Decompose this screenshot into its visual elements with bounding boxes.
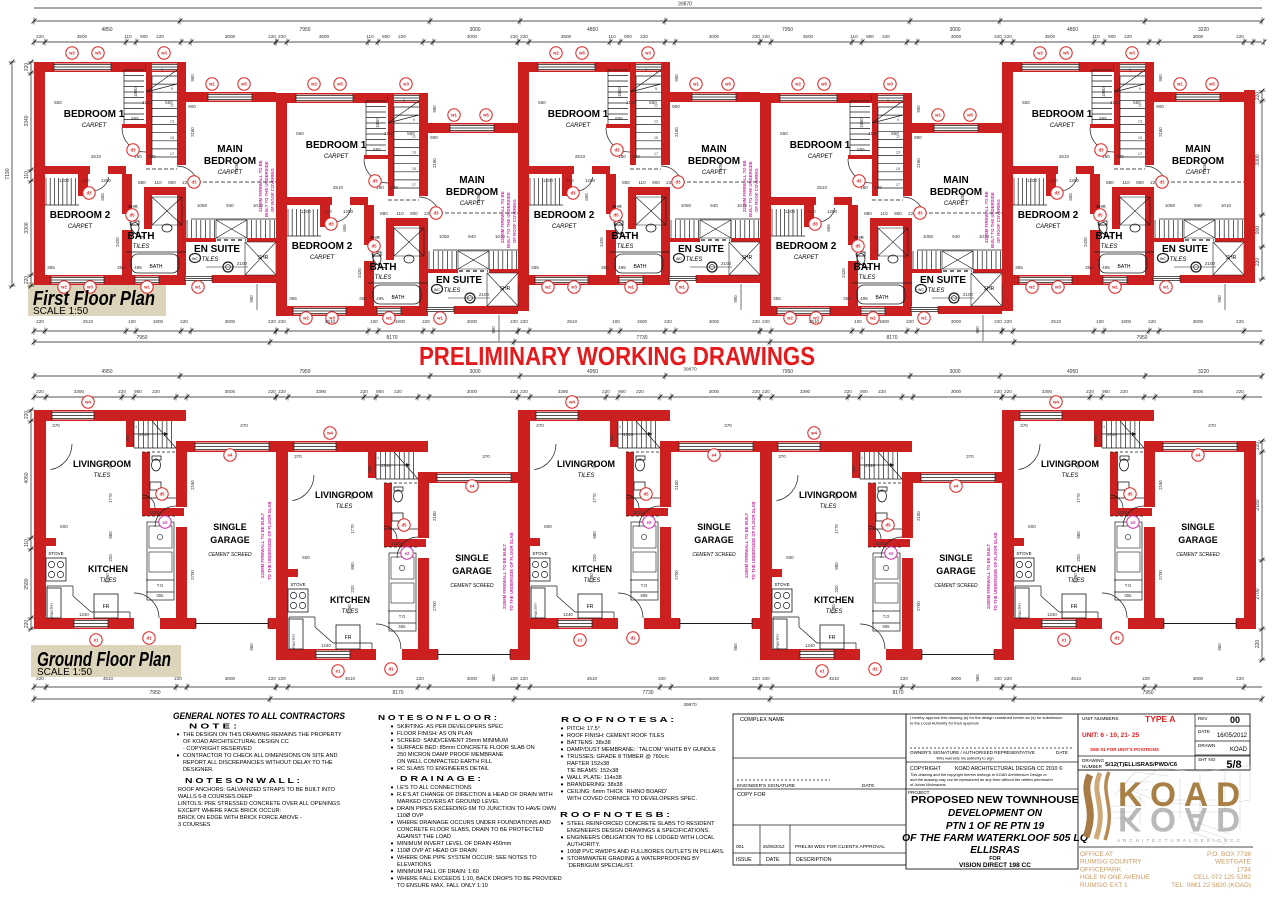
svg-text:110: 110: [1092, 34, 1100, 39]
svg-text:880: 880: [592, 531, 597, 539]
svg-text:OF ROOF COVERING: OF ROOF COVERING: [512, 199, 517, 243]
svg-text:ELEVATIONS: ELEVATIONS: [397, 862, 432, 868]
svg-text:4950: 4950: [587, 369, 598, 375]
svg-text:2480: 2480: [831, 604, 836, 614]
svg-text:220: 220: [882, 34, 890, 39]
svg-text:e4: e4: [954, 484, 959, 489]
svg-text:d5: d5: [855, 244, 861, 249]
svg-text:580: 580: [148, 154, 156, 159]
svg-text:LIVINGROOM: LIVINGROOM: [1041, 459, 1099, 469]
svg-text:FR: FR: [829, 635, 836, 641]
svg-text:D R A I N A G E :: D R A I N A G E :: [400, 774, 481, 783]
svg-text:w5: w5: [336, 82, 343, 87]
svg-text:KOAD ARCHITECTURAL DESIGN CC 2: KOAD ARCHITECTURAL DESIGN CC 2010 ©: [955, 765, 1063, 772]
svg-text:TILES: TILES: [578, 473, 595, 479]
svg-text:w5: w5: [578, 51, 585, 56]
svg-text:BATH: BATH: [1095, 231, 1122, 242]
svg-text:1860: 1860: [617, 87, 622, 97]
svg-text:110: 110: [1050, 178, 1058, 183]
svg-text:N O T E S O N F L O O R :: N O T E S O N F L O O R :: [378, 713, 497, 722]
svg-text:PANTRY: PANTRY: [1018, 602, 1022, 618]
svg-text:3000: 3000: [225, 389, 236, 394]
svg-text:STORMWATER GRADING & WATERPROO: STORMWATER GRADING & WATERPROOFING BY: [567, 856, 700, 862]
svg-text:2180: 2180: [432, 158, 437, 168]
svg-text:3000: 3000: [467, 676, 478, 681]
svg-text:220: 220: [278, 34, 286, 39]
svg-text:SEE 01 FOR UNIT'S POSITIONS: SEE 01 FOR UNIT'S POSITIONS: [1090, 747, 1159, 752]
svg-text:A R C H I T E C T U R A L D: A R C H I T E C T U R A L D E S I G N C …: [1117, 838, 1241, 843]
svg-text:355: 355: [843, 296, 851, 301]
svg-text:1860: 1860: [859, 118, 864, 128]
svg-text:655: 655: [1099, 116, 1107, 121]
svg-text:7950: 7950: [299, 27, 310, 33]
svg-text:3000: 3000: [951, 34, 962, 39]
svg-text:15: 15: [412, 167, 416, 171]
svg-text:d3: d3: [1159, 180, 1165, 185]
svg-text:DATE: DATE: [1198, 729, 1210, 734]
svg-text:940: 940: [710, 203, 718, 208]
svg-text:220: 220: [1076, 554, 1081, 562]
svg-text:PROPOSED NEW TOWNHOUSE: PROPOSED NEW TOWNHOUSE: [911, 795, 1079, 806]
svg-text:BATH: BATH: [1118, 264, 1131, 270]
svg-text:CEMENT SCREED: CEMENT SCREED: [692, 552, 736, 558]
svg-text:220: 220: [1236, 676, 1244, 681]
svg-text:580: 580: [632, 154, 640, 159]
svg-text:d3: d3: [570, 191, 576, 196]
svg-text:WHERE FALL EXCEEDS 1:10, BACK: WHERE FALL EXCEEDS 1:10, BACK DROPS TO B…: [397, 876, 562, 882]
svg-text:1: 1: [619, 425, 621, 429]
svg-text:220: 220: [24, 276, 30, 285]
svg-text:550: 550: [407, 131, 415, 136]
svg-text:d3: d3: [130, 148, 136, 153]
svg-text:7950: 7950: [149, 690, 160, 696]
svg-text:220: 220: [878, 389, 886, 394]
svg-text:110: 110: [124, 34, 132, 39]
svg-text:110: 110: [324, 209, 332, 214]
svg-text:655: 655: [100, 193, 105, 201]
svg-text:4510: 4510: [103, 676, 114, 681]
svg-text:15: 15: [1138, 136, 1142, 140]
svg-text:920: 920: [834, 492, 839, 500]
svg-text:STOVE: STOVE: [774, 582, 789, 587]
svg-text:PRELIMINARY WORKING DRAWINGS: PRELIMINARY WORKING DRAWINGS: [419, 341, 815, 371]
svg-text:220: 220: [510, 34, 518, 39]
svg-text:2100: 2100: [721, 261, 732, 266]
svg-text:BEDROOM 1: BEDROOM 1: [790, 140, 851, 151]
svg-text:370: 370: [240, 423, 248, 428]
svg-text:WITH COVED CORNICE TO DEVELOPE: WITH COVED CORNICE TO DEVELOPERS SPEC.: [567, 796, 697, 802]
svg-text:KOAD: KOAD: [1118, 800, 1248, 838]
svg-text:220: 220: [1142, 676, 1150, 681]
svg-text:880: 880: [1076, 531, 1081, 539]
svg-text:w5: w5: [240, 82, 247, 87]
svg-text:TILES: TILES: [444, 288, 461, 294]
svg-text:220: 220: [752, 319, 760, 324]
svg-text:BATTENS: 38x38: BATTENS: 38x38: [567, 740, 611, 746]
svg-text:220: 220: [394, 389, 402, 394]
svg-text:1900: 1900: [879, 319, 890, 324]
svg-text:15: 15: [654, 136, 658, 140]
svg-text:w3: w3: [1054, 285, 1061, 290]
svg-text:17: 17: [654, 152, 658, 156]
svg-text:1120: 1120: [391, 541, 401, 546]
svg-text:KITCHEN: KITCHEN: [88, 564, 128, 574]
svg-text:17: 17: [896, 183, 900, 187]
svg-text:SCREED: SAND/CEMENT 25mm MINIM: SCREED: SAND/CEMENT 25mm MINIMUM: [397, 738, 508, 744]
svg-text:PANTRY: PANTRY: [50, 602, 54, 618]
svg-text:BEDROOM 2: BEDROOM 2: [292, 241, 353, 252]
svg-text:MAIN: MAIN: [701, 144, 727, 155]
svg-text:BEDROOM: BEDROOM: [204, 156, 256, 167]
svg-text:d3: d3: [675, 180, 681, 185]
svg-text:5: 5: [645, 68, 647, 72]
svg-text:w3: w3: [886, 82, 893, 87]
svg-text:2480: 2480: [1073, 573, 1078, 583]
svg-text:DATE: DATE: [862, 783, 874, 789]
svg-text:3000: 3000: [1193, 319, 1204, 324]
svg-text:PITCH: 17.5°: PITCH: 17.5°: [567, 726, 600, 732]
svg-text:w5: w5: [1208, 82, 1215, 87]
svg-text:CARPET: CARPET: [1186, 170, 1212, 176]
svg-text:e1: e1: [578, 638, 583, 643]
svg-text:220: 220: [906, 319, 914, 324]
svg-text:BATH: BATH: [634, 264, 647, 270]
svg-text:d3: d3: [1054, 191, 1060, 196]
svg-text:3000: 3000: [1193, 676, 1204, 681]
svg-text:220: 220: [422, 319, 430, 324]
svg-text:920: 920: [592, 461, 597, 469]
svg-text:7950: 7950: [782, 369, 793, 375]
svg-text:w4: w4: [1052, 400, 1059, 405]
svg-text:110: 110: [880, 211, 888, 216]
svg-text:3000: 3000: [467, 319, 478, 324]
svg-text:3000: 3000: [467, 34, 478, 39]
svg-text:ELLISRAS: ELLISRAS: [970, 845, 1020, 856]
svg-text:CARPET: CARPET: [68, 224, 94, 230]
svg-text:9: 9: [655, 87, 657, 91]
svg-text:900: 900: [410, 211, 418, 216]
svg-text:2100: 2100: [1205, 261, 1216, 266]
svg-text:DATE: DATE: [766, 857, 780, 863]
svg-text:900: 900: [382, 34, 390, 39]
svg-text:SHR: SHR: [1226, 255, 1237, 261]
svg-text:w2: w2: [552, 51, 559, 56]
svg-text:TIE BEAMS: 152x38: TIE BEAMS: 152x38: [567, 768, 618, 774]
svg-text:TILES: TILES: [820, 504, 837, 510]
svg-text:930: 930: [1093, 434, 1098, 442]
svg-text:880: 880: [380, 211, 388, 216]
svg-text:1740: 1740: [1107, 432, 1118, 437]
svg-text:1050: 1050: [197, 203, 208, 208]
svg-text:1150: 1150: [384, 131, 394, 136]
svg-text:CEMENT SCREED: CEMENT SCREED: [1176, 552, 1220, 558]
svg-text:220: 220: [1120, 389, 1128, 394]
svg-text:d5: d5: [401, 523, 407, 528]
svg-text:100Ø PVC RWDPS AND FULLBORES O: 100Ø PVC RWDPS AND FULLBORES OUTLETS IN …: [567, 849, 725, 855]
svg-text:600: 600: [786, 555, 794, 560]
svg-text:2480: 2480: [347, 604, 352, 614]
svg-text:655: 655: [641, 593, 649, 598]
svg-text:940: 940: [226, 203, 234, 208]
svg-text:900: 900: [1102, 389, 1110, 394]
svg-text:355: 355: [117, 265, 125, 270]
svg-text:d3: d3: [191, 180, 197, 185]
svg-text:940: 940: [468, 234, 476, 239]
svg-text:w1: w1: [869, 316, 876, 321]
svg-text:w4: w4: [810, 431, 817, 436]
svg-text:STOVE: STOVE: [1016, 551, 1031, 556]
svg-text:1120: 1120: [149, 510, 159, 515]
svg-text:990: 990: [1217, 295, 1222, 303]
svg-text:355: 355: [289, 296, 297, 301]
svg-text:BATH: BATH: [392, 295, 405, 301]
svg-text:2510: 2510: [817, 185, 828, 190]
svg-text:1: 1: [135, 425, 137, 429]
svg-text:220: 220: [658, 676, 666, 681]
svg-text:LIVINGROOM: LIVINGROOM: [799, 490, 857, 500]
svg-text:1860: 1860: [133, 87, 138, 97]
svg-text:220: 220: [602, 389, 610, 394]
svg-text:GARAGE: GARAGE: [452, 566, 492, 576]
svg-text:220MM FIREWALL TO BE: 220MM FIREWALL TO BE: [258, 160, 263, 212]
svg-text:2510: 2510: [83, 319, 94, 324]
svg-text:7950: 7950: [1136, 335, 1147, 341]
svg-text:SHR: SHR: [128, 204, 138, 209]
svg-text:e2: e2: [647, 520, 652, 525]
svg-text:d5: d5: [643, 492, 649, 497]
svg-text:220: 220: [520, 34, 528, 39]
svg-text:1770: 1770: [108, 493, 113, 503]
svg-text:220: 220: [1004, 389, 1012, 394]
svg-text:PANTRY: PANTRY: [292, 633, 296, 649]
svg-text:960: 960: [491, 674, 496, 682]
svg-text:900: 900: [140, 34, 148, 39]
svg-text:d3: d3: [86, 191, 92, 196]
svg-text:220: 220: [24, 411, 30, 420]
svg-text:13: 13: [654, 120, 658, 124]
svg-text:w1: w1: [692, 82, 699, 87]
svg-text:WC: WC: [434, 288, 440, 292]
svg-text:e1: e1: [336, 669, 341, 674]
svg-text:550: 550: [1133, 100, 1141, 105]
svg-text:2510: 2510: [1059, 154, 1070, 159]
svg-text:SINGLE: SINGLE: [455, 553, 489, 563]
svg-text:220: 220: [1124, 34, 1132, 39]
svg-text:OFFICE AT: OFFICE AT: [1080, 851, 1113, 858]
svg-text:GARAGE: GARAGE: [694, 535, 734, 545]
svg-text:CARPET: CARPET: [794, 255, 820, 261]
svg-text:`DERBIGUM SPECIALIST.: `DERBIGUM SPECIALIST.: [567, 863, 634, 869]
svg-text:TEL: 0861 22 5820 (KOAD): TEL: 0861 22 5820 (KOAD): [1171, 882, 1251, 889]
svg-text:CARPET: CARPET: [460, 201, 486, 207]
svg-text:w2: w2: [544, 285, 551, 290]
svg-text:d3: d3: [856, 179, 862, 184]
svg-text:1050: 1050: [439, 234, 450, 239]
svg-text:PTN 1 OF RE PTN 19: PTN 1 OF RE PTN 19: [946, 821, 1045, 832]
svg-text:REV: REV: [1198, 716, 1208, 721]
svg-text:3390: 3390: [74, 389, 85, 394]
svg-text:TILES: TILES: [133, 244, 150, 250]
svg-text:3000: 3000: [709, 34, 720, 39]
svg-text:MINIMUM FALL OF DRAIN: 1:60: MINIMUM FALL OF DRAIN: 1:60: [397, 869, 479, 875]
svg-text:220: 220: [1236, 389, 1244, 394]
svg-text:e1: e1: [1062, 638, 1067, 643]
svg-text:RC SLABS TO ENGINEERS DETAIL: RC SLABS TO ENGINEERS DETAIL: [397, 766, 489, 772]
svg-text:e1: e1: [820, 669, 825, 674]
svg-text:220: 220: [278, 676, 286, 681]
svg-text:940: 940: [1194, 203, 1202, 208]
svg-text:e2: e2: [1131, 520, 1136, 525]
svg-text:940: 940: [952, 234, 960, 239]
svg-text:880: 880: [864, 211, 872, 216]
svg-text:OF KOAD ARCHITECTURAL DESIGN C: OF KOAD ARCHITECTURAL DESIGN CC: [183, 739, 289, 745]
svg-text:1900: 1900: [637, 319, 648, 324]
svg-text:220MM FIREWALL TO BE BUILT: 220MM FIREWALL TO BE BUILT: [260, 512, 265, 578]
svg-text:550: 550: [165, 100, 173, 105]
svg-text:600: 600: [60, 524, 68, 529]
svg-text:CEMENT SCREED: CEMENT SCREED: [450, 583, 494, 589]
svg-text:3000: 3000: [1193, 389, 1204, 394]
svg-text:N O T E :: N O T E :: [189, 722, 237, 731]
svg-text:220: 220: [664, 319, 672, 324]
svg-text:355: 355: [601, 265, 609, 270]
svg-text:1150: 1150: [626, 100, 636, 105]
svg-text:TO THE UNDERSIDE OF FLOOR SLAB: TO THE UNDERSIDE OF FLOOR SLAB: [509, 533, 514, 611]
svg-text:7950: 7950: [782, 27, 793, 33]
svg-text:WESTGATE: WESTGATE: [1215, 859, 1252, 866]
svg-text:TILES: TILES: [928, 288, 945, 294]
svg-text:1734: 1734: [1237, 866, 1252, 873]
svg-text:BEDROOM 1: BEDROOM 1: [306, 140, 367, 151]
svg-text:T.O: T.O: [883, 614, 890, 619]
svg-text:1050: 1050: [1165, 203, 1176, 208]
svg-text:CARPET: CARPET: [1036, 224, 1062, 230]
svg-text:OF ROOF COVERING: OF ROOF COVERING: [996, 199, 1001, 243]
svg-text:2510: 2510: [333, 185, 344, 190]
svg-text:3000: 3000: [951, 319, 962, 324]
svg-text:w2: w2: [794, 82, 801, 87]
svg-text:3390: 3390: [316, 389, 327, 394]
svg-text:355: 355: [47, 265, 55, 270]
svg-text:220: 220: [268, 389, 276, 394]
svg-text:OF THE FARM WATERKLOOF 505 LQ: OF THE FARM WATERKLOOF 505 LQ: [902, 833, 1088, 844]
svg-text:220: 220: [1236, 319, 1244, 324]
svg-text:495: 495: [134, 265, 142, 270]
svg-text:2180: 2180: [1158, 127, 1163, 137]
svg-text:MAIN: MAIN: [459, 175, 485, 186]
svg-text:600: 600: [1028, 524, 1036, 529]
svg-text:CARPET: CARPET: [552, 224, 578, 230]
svg-text:5: 5: [403, 99, 405, 103]
svg-text:355: 355: [773, 296, 781, 301]
svg-text:8170: 8170: [386, 335, 397, 341]
svg-text:w5: w5: [820, 82, 827, 87]
svg-text:SINGLE: SINGLE: [213, 522, 247, 532]
svg-text:w3: w3: [1128, 51, 1135, 56]
svg-text:1150: 1150: [1110, 100, 1120, 105]
svg-text:7730: 7730: [642, 690, 653, 696]
svg-text:220: 220: [1255, 258, 1261, 267]
svg-text:w5: w5: [94, 51, 101, 56]
svg-text:3000: 3000: [709, 389, 720, 394]
svg-text:4850: 4850: [101, 27, 112, 33]
svg-text:4050: 4050: [476, 192, 481, 202]
svg-text:SHR: SHR: [854, 235, 864, 240]
svg-text:2420: 2420: [357, 268, 362, 278]
svg-text:1200: 1200: [543, 178, 554, 183]
svg-text:CELL 072 125 5282: CELL 072 125 5282: [1193, 874, 1251, 881]
svg-text:550: 550: [780, 131, 788, 136]
svg-text:655: 655: [157, 593, 165, 598]
svg-text:5: 5: [161, 68, 163, 72]
svg-text:w5: w5: [966, 113, 973, 118]
svg-text:100: 100: [854, 319, 862, 324]
svg-text:220: 220: [108, 554, 113, 562]
svg-text:220: 220: [36, 34, 44, 39]
svg-text:BEDROOM: BEDROOM: [688, 156, 740, 167]
svg-text:OWNER'S SIGNATURE / AUTHORISED: OWNER'S SIGNATURE / AUTHORISED REPRESENT…: [910, 750, 1035, 755]
svg-text:110: 110: [566, 178, 574, 183]
svg-text:370: 370: [536, 423, 544, 428]
svg-text:DRAWING: DRAWING: [1082, 758, 1104, 763]
svg-text:- COPYRIGHT RESERVED: - COPYRIGHT RESERVED: [183, 746, 252, 752]
svg-text:550: 550: [1022, 100, 1030, 105]
svg-text:SINGLE: SINGLE: [1181, 522, 1215, 532]
svg-text:CEMENT SCREED: CEMENT SCREED: [208, 552, 252, 558]
svg-text:550: 550: [296, 131, 304, 136]
svg-text:990: 990: [975, 326, 980, 334]
svg-text:655: 655: [373, 147, 381, 152]
svg-text:1900: 1900: [1121, 319, 1132, 324]
svg-text:220MM FIREWALL TO BE BUILT: 220MM FIREWALL TO BE BUILT: [744, 512, 749, 578]
svg-text:1200: 1200: [585, 178, 596, 183]
svg-text:AUTHORITY.: AUTHORITY.: [567, 842, 601, 848]
svg-text:110: 110: [638, 180, 646, 185]
svg-text:TRUSSES: GRADE 8 TIMBER @ 760c: TRUSSES: GRADE 8 TIMBER @ 760c/c: [567, 754, 669, 760]
svg-text:220: 220: [1255, 640, 1261, 649]
svg-text:2180: 2180: [190, 480, 195, 490]
svg-text:220: 220: [752, 676, 760, 681]
svg-text:930: 930: [125, 434, 130, 442]
svg-text:TO THE UNDERSIDE OF FLOOR SLAB: TO THE UNDERSIDE OF FLOOR SLAB: [993, 533, 998, 611]
svg-text:2510: 2510: [567, 319, 578, 324]
svg-text:100: 100: [370, 319, 378, 324]
svg-text:655: 655: [883, 624, 891, 629]
svg-text:w1: w1: [194, 285, 201, 290]
svg-text:COMPLEX NAME: COMPLEX NAME: [740, 717, 785, 723]
svg-text:3390: 3390: [1042, 389, 1053, 394]
svg-text:4050: 4050: [234, 161, 239, 171]
svg-text:BATH: BATH: [150, 264, 163, 270]
svg-text:EN SUITE: EN SUITE: [436, 275, 482, 286]
svg-text:370: 370: [482, 454, 490, 459]
svg-text:OFFICEPARK: OFFICEPARK: [1080, 866, 1122, 873]
svg-text:1900: 1900: [395, 319, 406, 324]
svg-text:N O T E S O N W A L L :: N O T E S O N W A L L :: [185, 776, 300, 785]
svg-text:110: 110: [808, 209, 816, 214]
svg-text:655: 655: [857, 147, 865, 152]
svg-text:MINIMUM INVERT LEVEL OF DRAIN: MINIMUM INVERT LEVEL OF DRAIN 450mm: [397, 841, 512, 847]
svg-text:DRAIN PIPES EXCEEDING 6M TO JU: DRAIN PIPES EXCEEDING 6M TO JUNCTION TO …: [397, 806, 556, 812]
svg-text:580: 580: [1116, 154, 1124, 159]
svg-text:w1: w1: [385, 316, 392, 321]
svg-text:900: 900: [1255, 226, 1261, 235]
svg-text:220: 220: [636, 389, 644, 394]
svg-text:1860: 1860: [1101, 87, 1106, 97]
svg-text:960: 960: [733, 643, 738, 651]
svg-text:ENGINEER'S SIGNATURE: ENGINEER'S SIGNATURE: [737, 783, 795, 789]
svg-text:1: 1: [1103, 425, 1105, 429]
